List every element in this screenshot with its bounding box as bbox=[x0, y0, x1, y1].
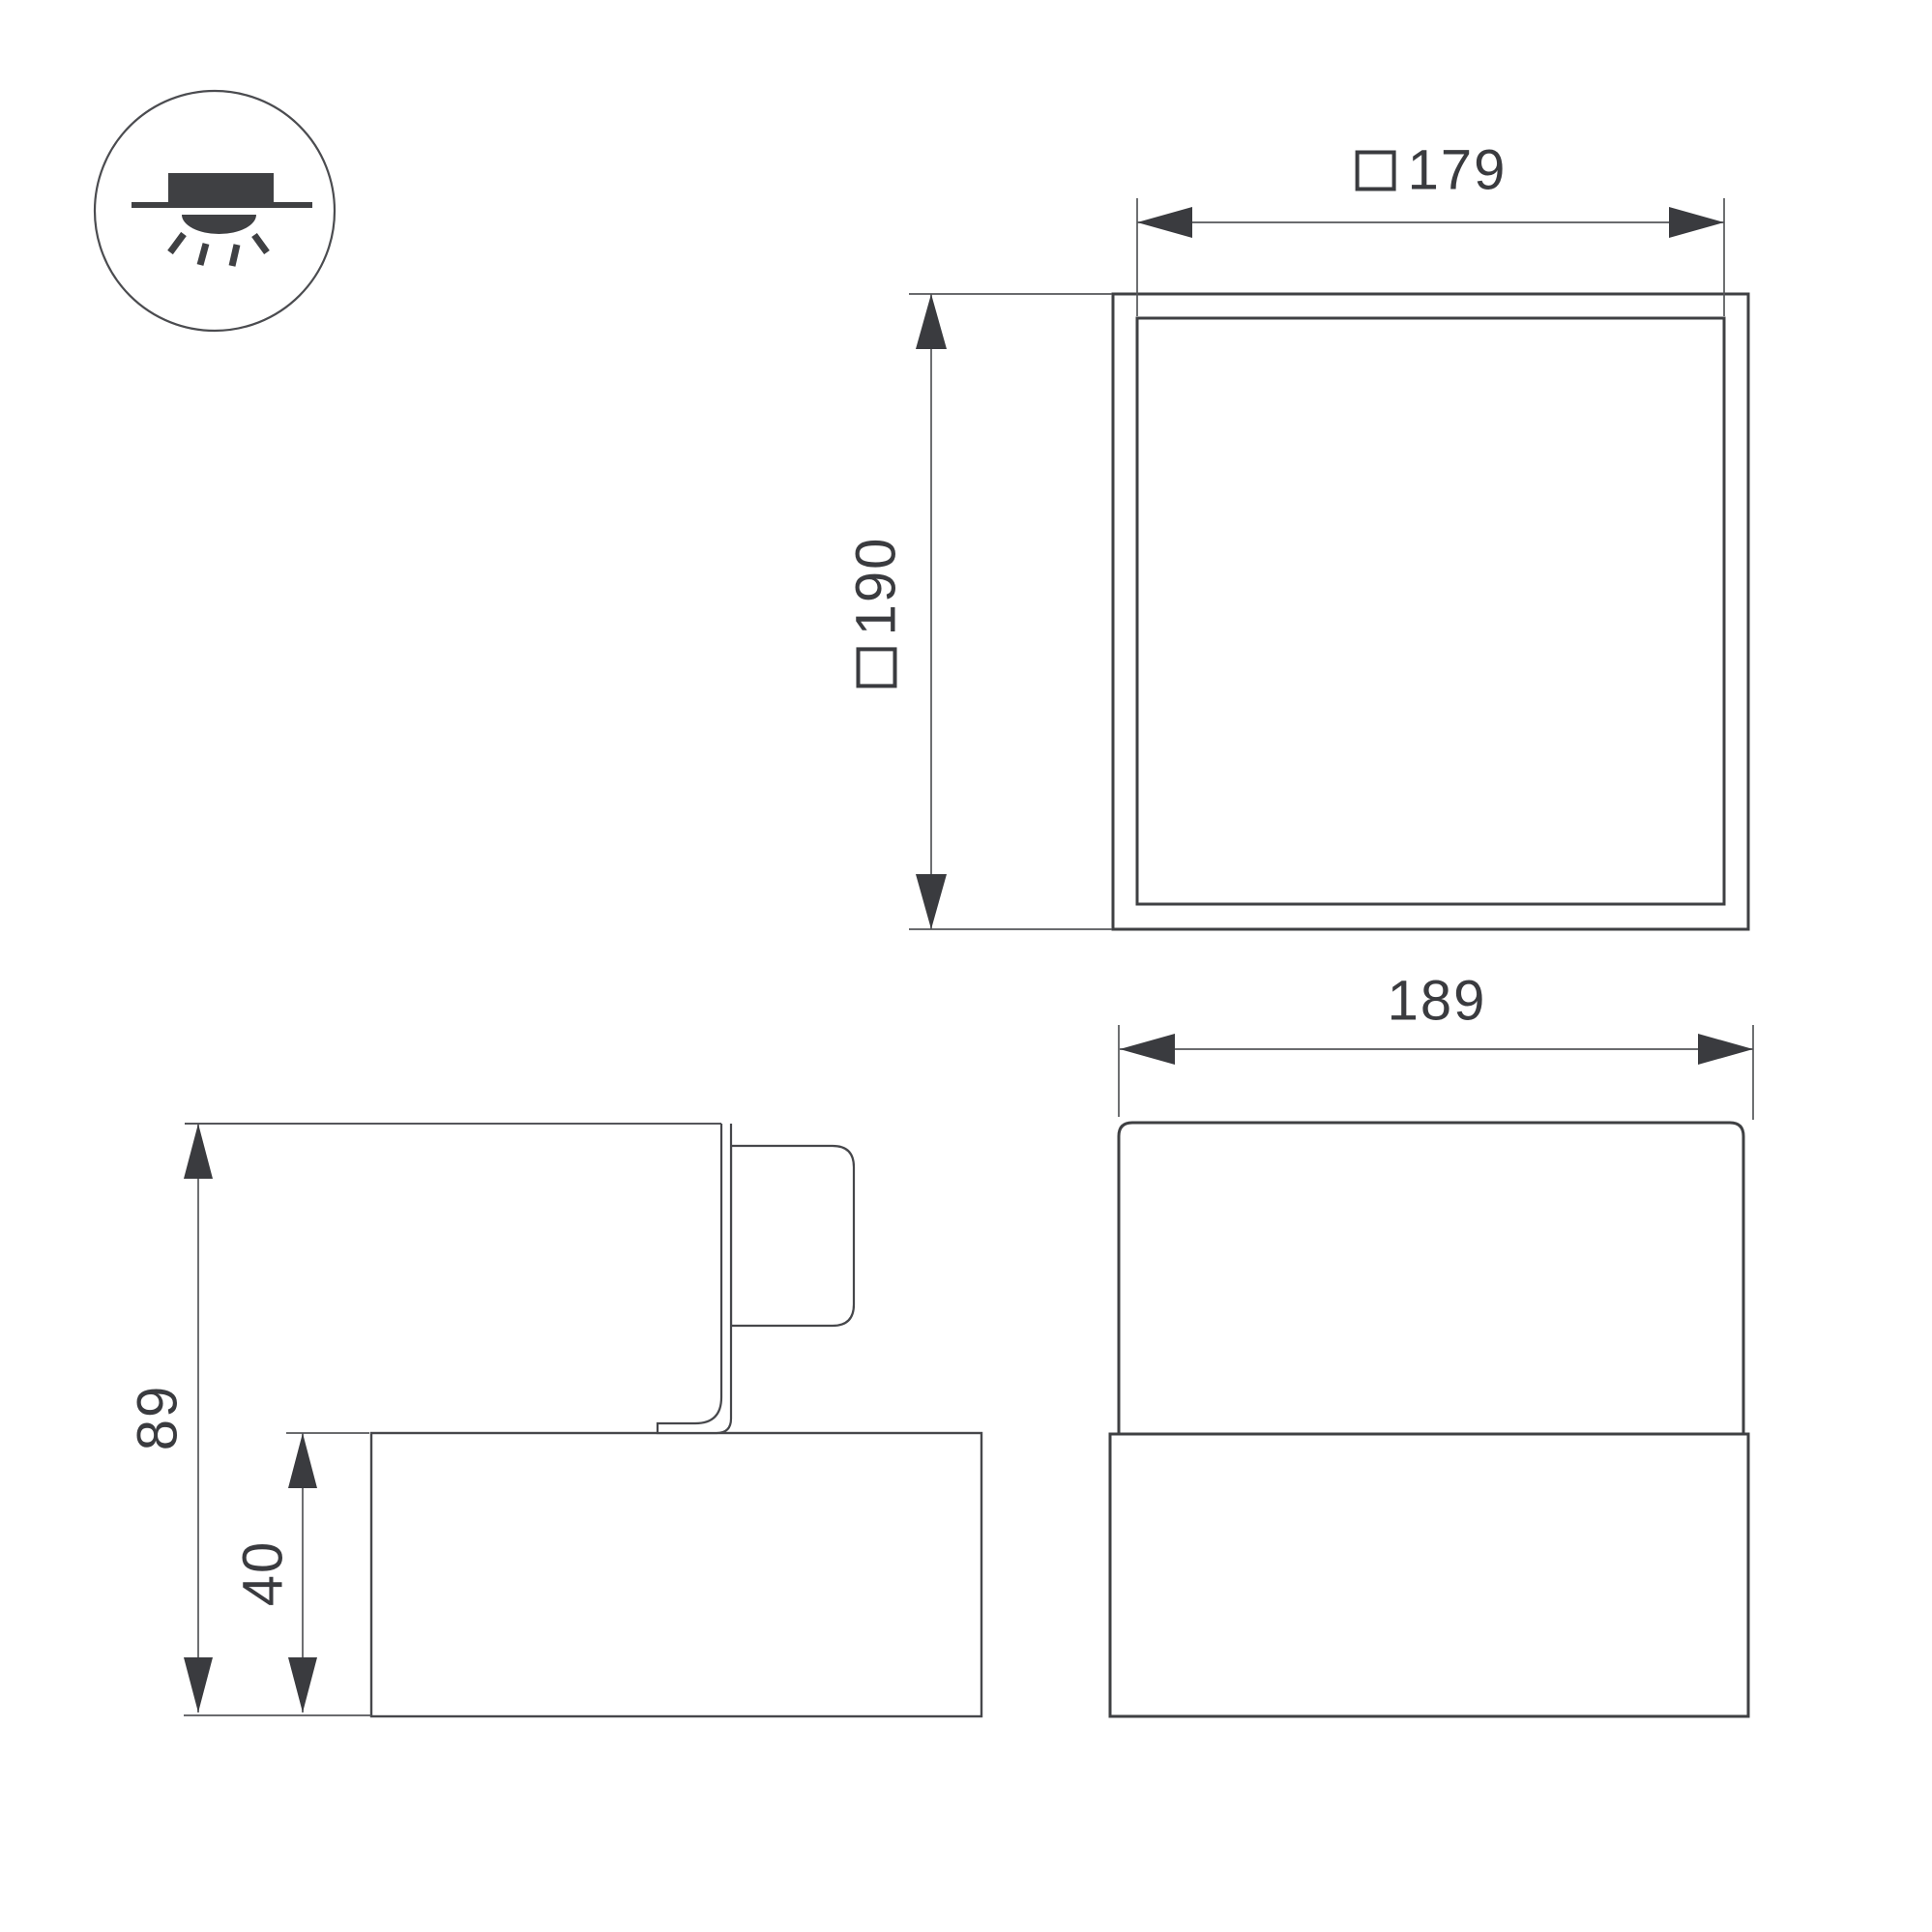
dimension-label-total-height: 89 bbox=[126, 1385, 190, 1451]
front-view-head bbox=[1119, 1123, 1743, 1434]
side-view-lamp-body bbox=[371, 1433, 981, 1716]
arrowhead bbox=[1120, 1034, 1175, 1065]
dimension-label-overall-size: 190 bbox=[844, 537, 909, 688]
arrowhead bbox=[184, 1124, 213, 1179]
surface-mounted-downlight-icon bbox=[95, 91, 335, 331]
icon-lamp-body bbox=[168, 173, 274, 205]
top-view-outer-square bbox=[1113, 294, 1748, 929]
dimension-label-body-height: 40 bbox=[231, 1540, 296, 1607]
top-view bbox=[1113, 294, 1748, 929]
arrowhead bbox=[916, 874, 947, 929]
arrowhead bbox=[1137, 207, 1192, 238]
side-view-mounting-bracket bbox=[658, 1124, 731, 1433]
dimension-value: 179 bbox=[1408, 138, 1508, 203]
square-symbol bbox=[1356, 150, 1396, 190]
dimension-value: 40 bbox=[231, 1540, 296, 1607]
dimension-value: 190 bbox=[844, 537, 909, 636]
arrowhead bbox=[288, 1433, 317, 1488]
side-view-dimensions bbox=[184, 1124, 371, 1715]
dimension-value: 189 bbox=[1388, 969, 1487, 1034]
drawing-linework bbox=[0, 0, 1932, 1932]
arrowhead bbox=[916, 294, 947, 349]
arrowhead bbox=[184, 1657, 213, 1712]
dimension-label-cutout-size: 179 bbox=[1356, 138, 1508, 203]
dimension-label-front-width: 189 bbox=[1388, 969, 1487, 1034]
arrowhead bbox=[288, 1657, 317, 1712]
icon-lamp-dome bbox=[182, 215, 256, 234]
icon-circle bbox=[95, 91, 335, 331]
front-view-dimensions bbox=[1119, 1025, 1753, 1120]
side-view-driver-box bbox=[731, 1146, 854, 1326]
icon-ceiling-line bbox=[132, 202, 312, 208]
square-symbol bbox=[856, 647, 896, 688]
front-view bbox=[1110, 1123, 1748, 1716]
dimension-value: 89 bbox=[126, 1385, 190, 1451]
front-view-lamp-body bbox=[1110, 1434, 1748, 1716]
arrowhead bbox=[1698, 1034, 1753, 1065]
dimension-drawing: 179 190 89 40 189 bbox=[0, 0, 1932, 1932]
icon-light-rays bbox=[170, 234, 267, 266]
side-view bbox=[185, 1124, 981, 1716]
arrowhead bbox=[1669, 207, 1724, 238]
